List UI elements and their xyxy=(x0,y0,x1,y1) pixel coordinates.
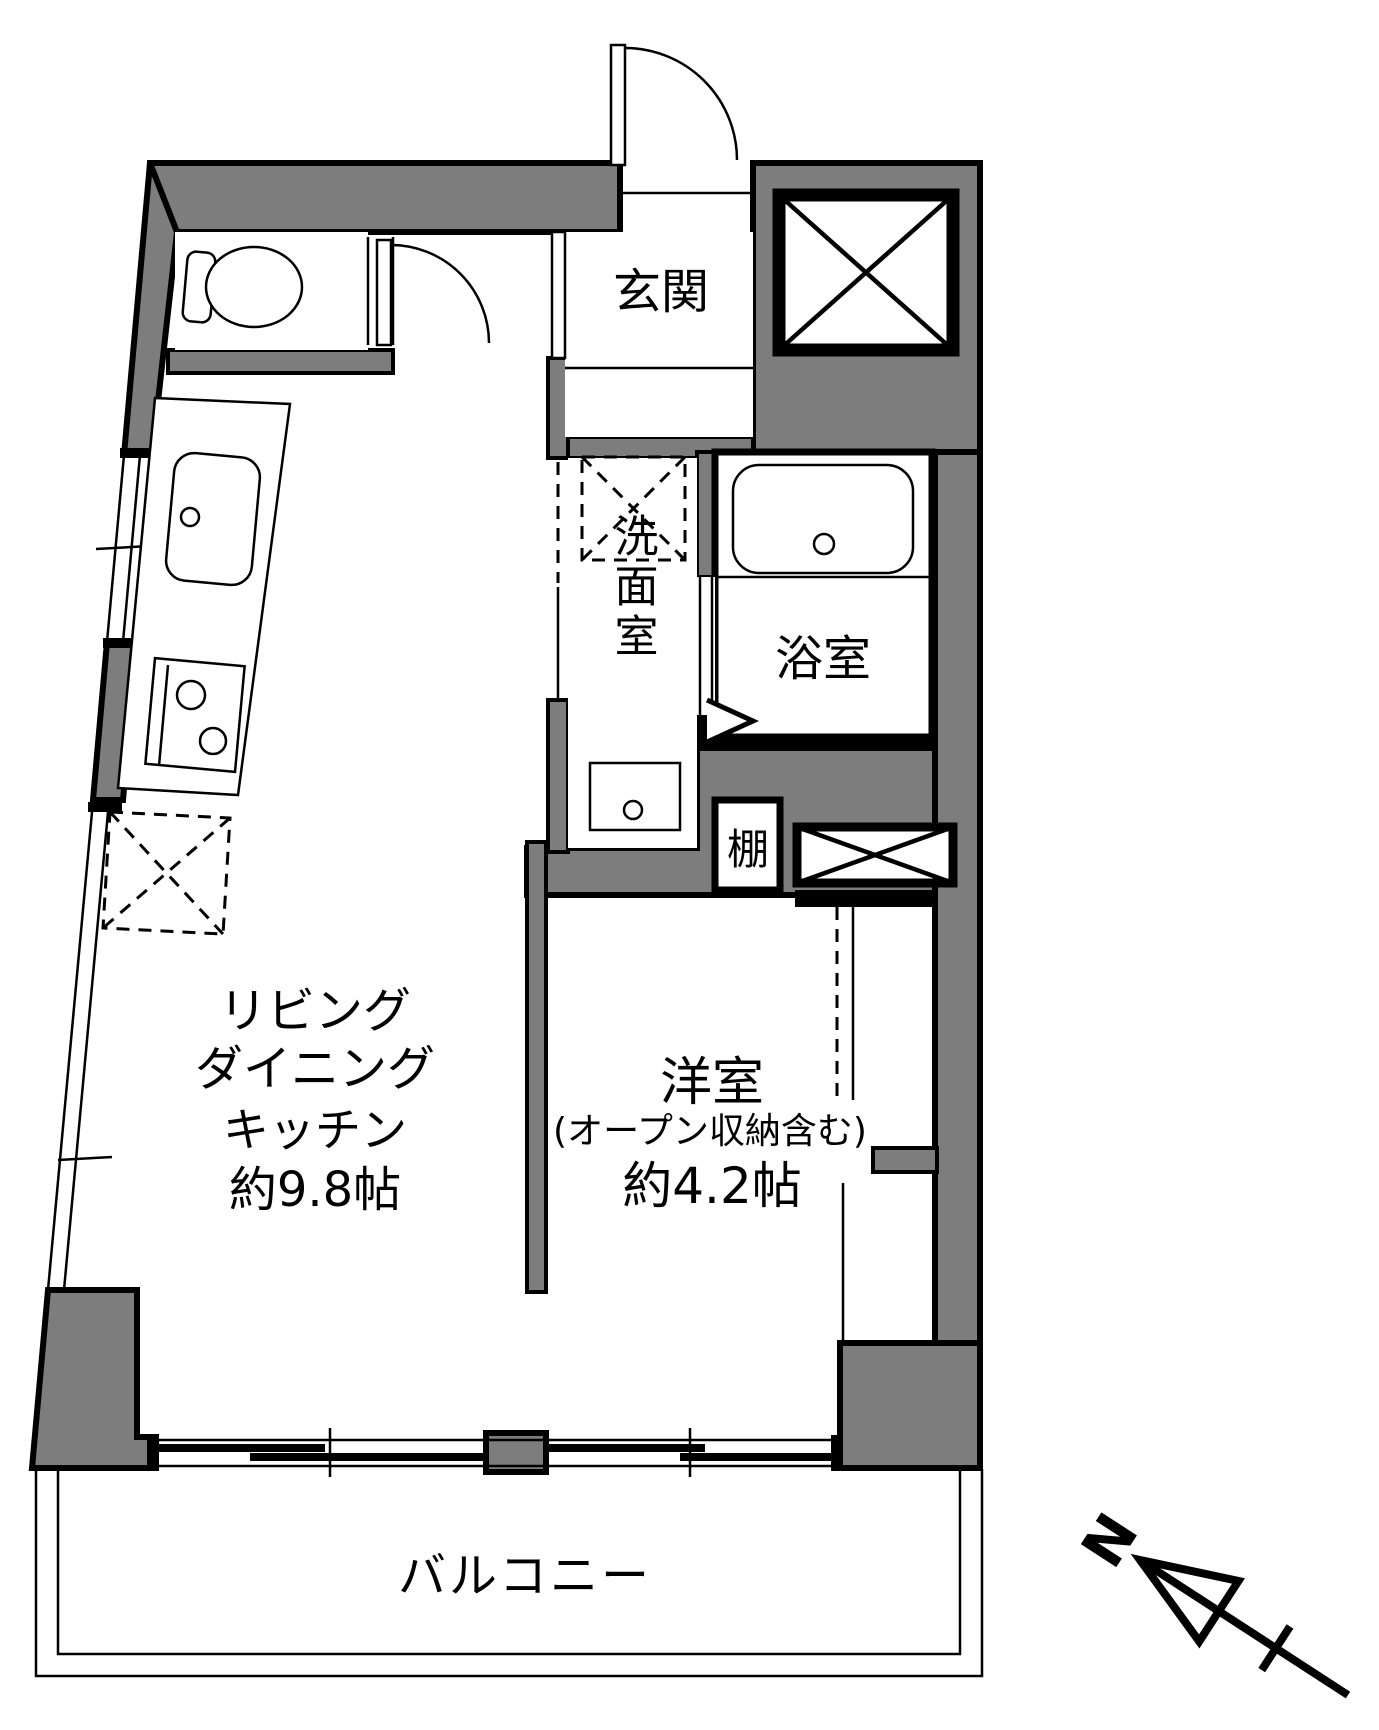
entrance-hall xyxy=(565,232,753,437)
balcony-label: バルコニー xyxy=(398,1548,652,1604)
entrance-door xyxy=(611,45,753,193)
pipe-space-box xyxy=(797,827,953,883)
entrance-partition xyxy=(552,232,565,358)
western-room-label: 洋室 (オープン収納含む) 約4.2帖 xyxy=(553,1053,867,1215)
bathroom-label: 浴室 xyxy=(775,631,871,687)
western-room-top-wall xyxy=(795,890,932,907)
compass-shaft xyxy=(1148,1565,1348,1695)
bottom-right-pillar xyxy=(840,1343,980,1468)
toilet-door-leaf xyxy=(377,240,391,345)
compass: N xyxy=(1062,1492,1368,1726)
right-wall xyxy=(935,452,980,1343)
entrance-door-leaf xyxy=(611,45,625,165)
washroom-label: 洗面室 xyxy=(607,513,658,663)
toilet-bottom-wall xyxy=(168,350,393,373)
entrance-door-swing xyxy=(625,48,737,160)
floor-plan: N 玄関 洗面室 浴室 棚 リビング ダイニング キッチン 約9.8帖 洋室 (… xyxy=(0,0,1379,1730)
bottom-left-pillar xyxy=(32,1290,156,1468)
ldk-label: リビング ダイニング キッチン 約9.8帖 xyxy=(195,983,435,1218)
washroom-left-stub-bottom xyxy=(548,700,568,852)
western-room-left-wall xyxy=(527,842,546,1292)
toilet-door xyxy=(368,237,489,345)
compass-north-label: N xyxy=(1068,1502,1151,1580)
svg-text:洋室: 洋室 xyxy=(660,1053,764,1113)
washbasin-icon xyxy=(590,763,680,830)
svg-text:キッチン: キッチン xyxy=(223,1103,407,1157)
open-storage-stub xyxy=(873,1148,937,1172)
toilet-door-swing xyxy=(391,245,489,343)
bathtub-icon xyxy=(715,465,932,577)
left-window-lower xyxy=(48,802,122,1290)
svg-text:ダイニング: ダイニング xyxy=(195,1041,435,1097)
top-wall-left xyxy=(146,163,620,232)
western-room-note: (オープン収納含む) xyxy=(553,1111,867,1152)
ldk-area-label: 約9.8帖 xyxy=(229,1162,401,1218)
shaft-box xyxy=(779,195,953,350)
stove-icon xyxy=(145,658,244,772)
kitchen-sink-icon xyxy=(164,451,261,586)
toilet-icon xyxy=(182,247,302,327)
svg-text:リビング: リビング xyxy=(219,983,411,1039)
refrigerator-space xyxy=(103,812,230,934)
compass-tick xyxy=(1262,1626,1290,1670)
western-room-area: 約4.2帖 xyxy=(622,1157,802,1215)
shelf-label: 棚 xyxy=(727,825,769,874)
entrance-label: 玄関 xyxy=(613,264,709,320)
